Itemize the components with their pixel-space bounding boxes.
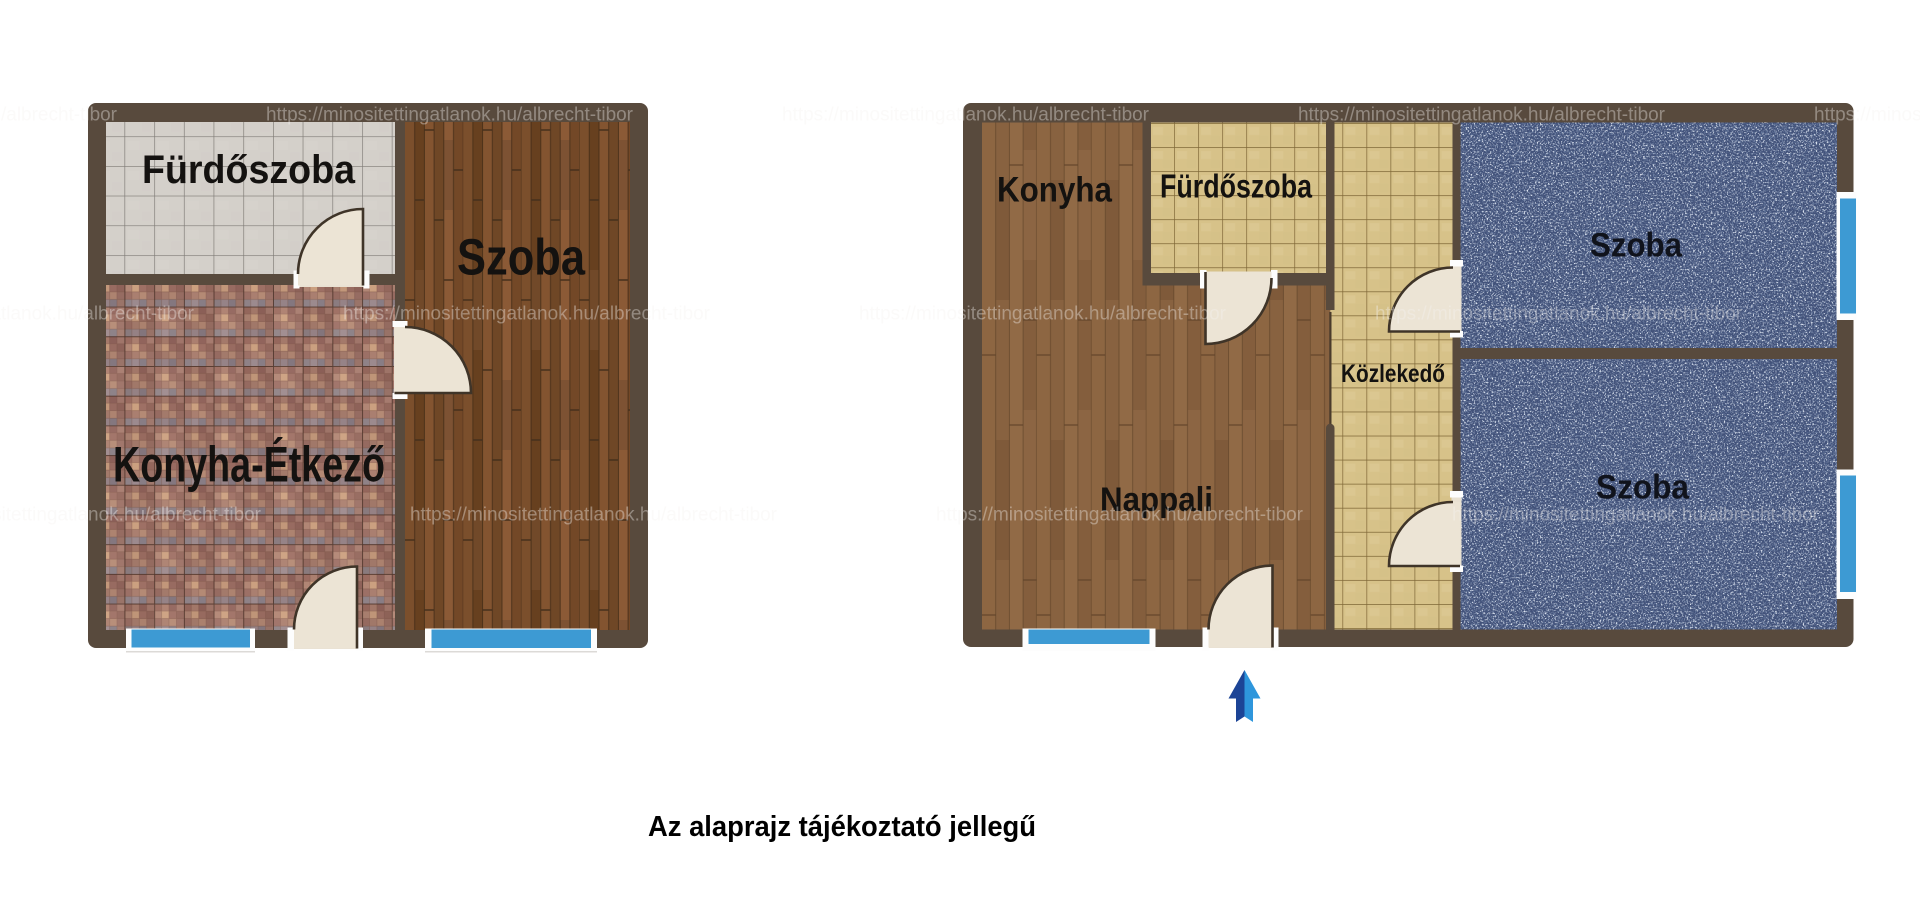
svg-text:https://minositettingatlanok.h: https://minositettingatlanok.hu/albrecht… — [782, 105, 1150, 126]
svg-text:https://minositettingatlanok.h: https://minositettingatlanok.hu/albrecht… — [1298, 105, 1666, 126]
svg-text:https://minositettingatlanok.h: https://minositettingatlanok.hu/albrecht… — [266, 105, 634, 126]
svg-text:https://minositettingatlanok.h: https://minositettingatlanok.hu/albrecht… — [0, 105, 118, 126]
svg-text:https://minositettingatlanok.h: https://minositettingatlanok.hu/albrecht… — [1452, 505, 1820, 526]
svg-text:https://minositettingatlanok.h: https://minositettingatlanok.hu/albrecht… — [0, 304, 195, 325]
svg-text:Szoba: Szoba — [457, 229, 586, 286]
svg-text:https://minositettingatlanok.h: https://minositettingatlanok.hu/albrecht… — [343, 304, 711, 325]
svg-text:https://minositettingatlanok.h: https://minositettingatlanok.hu/albrecht… — [1375, 304, 1743, 325]
svg-text:Fürdőszoba: Fürdőszoba — [1160, 167, 1313, 204]
svg-text:https://minositettingatlanok.h: https://minositettingatlanok.hu/albrecht… — [1814, 105, 1920, 126]
svg-text:https://minositettingatlanok.h: https://minositettingatlanok.hu/albrecht… — [410, 505, 778, 526]
svg-text:Közlekedő: Közlekedő — [1341, 360, 1445, 388]
svg-text:https://minositettingatlanok.h: https://minositettingatlanok.hu/albrecht… — [936, 505, 1304, 526]
svg-text:Konyha-Étkező: Konyha-Étkező — [113, 437, 385, 493]
svg-text:Szoba: Szoba — [1590, 227, 1683, 265]
svg-text:https://minositettingatlanok.h: https://minositettingatlanok.hu/albrecht… — [859, 304, 1227, 325]
svg-text:https://minositettingatlanok.h: https://minositettingatlanok.hu/albrecht… — [0, 505, 262, 526]
svg-text:Az alaprajz tájékoztató jelleg: Az alaprajz tájékoztató jellegű — [648, 811, 1036, 843]
svg-text:Konyha: Konyha — [997, 171, 1112, 210]
svg-text:Szoba: Szoba — [1596, 468, 1690, 506]
svg-text:Fürdőszoba: Fürdőszoba — [142, 148, 356, 192]
